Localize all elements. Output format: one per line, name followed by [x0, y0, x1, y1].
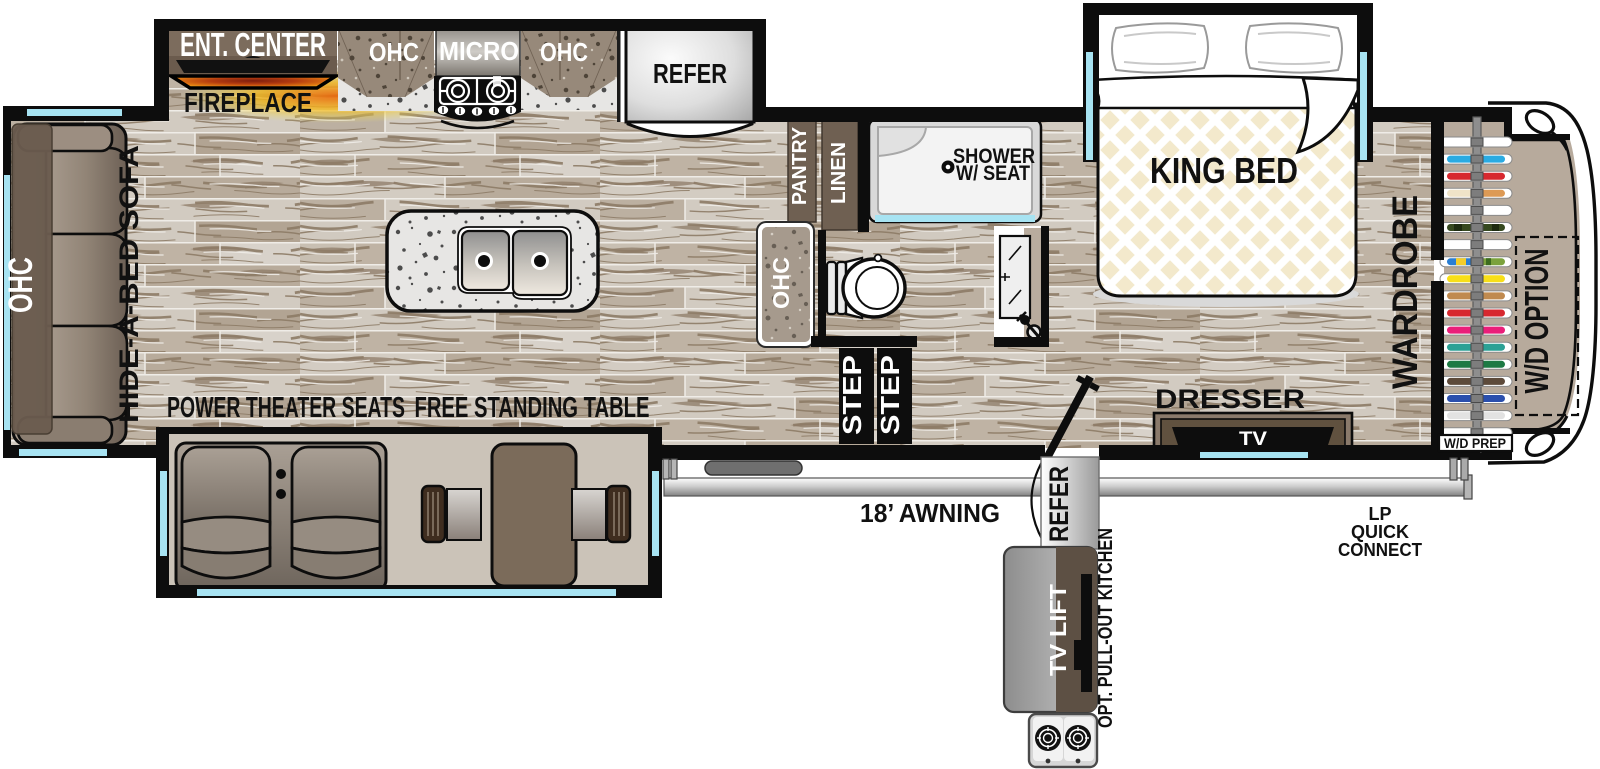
svg-text:DRESSER: DRESSER — [1155, 384, 1305, 414]
svg-text:OHC: OHC — [369, 37, 419, 67]
svg-text:CONNECT: CONNECT — [1338, 540, 1422, 560]
svg-text:MICRO: MICRO — [439, 36, 519, 66]
svg-text:PANTRY: PANTRY — [789, 126, 811, 205]
svg-text:KING BED: KING BED — [1150, 150, 1298, 191]
svg-text:HIDE-A-BED SOFA: HIDE-A-BED SOFA — [114, 145, 144, 423]
svg-text:QUICK: QUICK — [1351, 522, 1409, 542]
svg-text:18’ AWNING: 18’ AWNING — [860, 498, 1000, 528]
svg-text:REFER: REFER — [653, 58, 727, 89]
svg-text:STEP: STEP — [837, 355, 867, 435]
svg-text:OHC: OHC — [540, 37, 588, 67]
svg-text:FIREPLACE: FIREPLACE — [184, 87, 312, 118]
svg-text:POWER THEATER SEATS: POWER THEATER SEATS — [167, 392, 405, 424]
svg-text:W/D OPTION: W/D OPTION — [1518, 249, 1555, 394]
svg-text:LINEN: LINEN — [828, 142, 850, 204]
svg-text:REFER: REFER — [1044, 466, 1074, 542]
svg-text:W/ SEAT: W/ SEAT — [956, 162, 1030, 185]
svg-text:LP: LP — [1368, 504, 1391, 524]
svg-text:STEP: STEP — [875, 355, 905, 435]
svg-text:OPT. PULL-OUT KITCHEN: OPT. PULL-OUT KITCHEN — [1095, 528, 1117, 728]
svg-text:ENT. CENTER: ENT. CENTER — [180, 26, 326, 63]
svg-text:W/D PREP: W/D PREP — [1444, 435, 1506, 451]
svg-text:TV: TV — [1239, 429, 1267, 450]
svg-text:WARDROBE: WARDROBE — [1386, 195, 1425, 389]
svg-text:OHC: OHC — [768, 257, 794, 309]
svg-text:FREE STANDING TABLE: FREE STANDING TABLE — [415, 392, 650, 424]
svg-text:OHC: OHC — [2, 257, 40, 313]
svg-text:TV LIFT: TV LIFT — [1045, 584, 1071, 676]
